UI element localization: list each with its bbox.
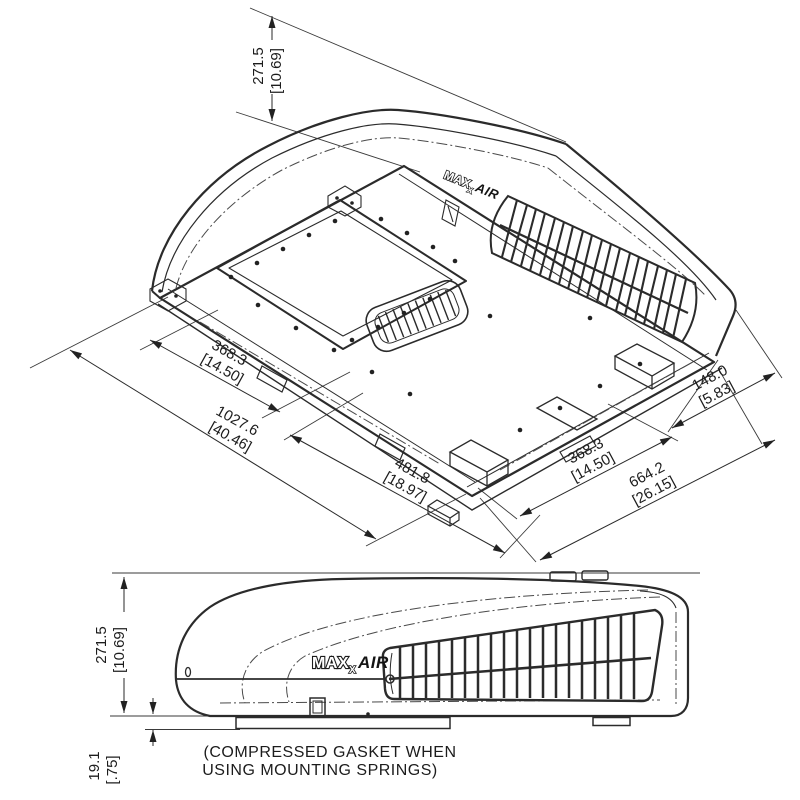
technical-drawing-page: MAX X AIR 271.5 [10.69] 368.3 [14.50] 10… — [0, 0, 800, 800]
side-logo-air: AIR — [357, 653, 389, 672]
iso-dim-height-inch: [10.69] — [268, 48, 285, 94]
side-view: MAX X AIR 271.5 [10.69] 19.1 [.75] (COMP… — [86, 571, 700, 785]
side-extension-lines — [110, 573, 700, 730]
gasket-note: (COMPRESSED GASKET WHEN USING MOUNTING S… — [202, 744, 456, 779]
side-condenser-grille — [383, 610, 662, 701]
side-dim-height-inch: [10.69] — [111, 627, 128, 673]
gasket-note-line2: USING MOUNTING SPRINGS) — [202, 762, 438, 779]
side-logo-max: MAX — [312, 655, 349, 672]
iso-condenser-grille — [491, 196, 697, 342]
side-logo-sub-x: X — [349, 665, 356, 676]
iso-base-pan — [158, 166, 722, 510]
side-dim-height-mm: 271.5 — [93, 626, 110, 664]
side-body-outline — [175, 571, 688, 716]
iso-bolts — [158, 196, 642, 432]
iso-maxxair-logo: MAX X AIR — [441, 167, 502, 205]
iso-dim-height-mm: 271.5 — [250, 47, 267, 85]
iso-dimension-texts: 271.5 [10.69] 368.3 [14.50] 1027.6 [40.4… — [198, 47, 737, 509]
iso-logo-air: AIR — [472, 179, 501, 202]
side-dimension-lines — [124, 577, 153, 746]
iso-mounting-frame — [150, 186, 466, 349]
iso-intake-vent — [362, 277, 472, 356]
isometric-view: MAX X AIR 271.5 [10.69] 368.3 [14.50] 10… — [30, 8, 782, 562]
side-dim-gasket-inch: [.75] — [104, 755, 121, 784]
drawing-canvas: MAX X AIR 271.5 [10.69] 368.3 [14.50] 10… — [0, 0, 800, 800]
gasket-note-line1: (COMPRESSED GASKET WHEN — [203, 744, 456, 761]
side-dim-gasket-mm: 19.1 — [86, 751, 103, 780]
side-maxxair-logo: MAX X AIR — [312, 653, 389, 676]
side-gasket — [236, 718, 630, 729]
side-dimension-texts: 271.5 [10.69] 19.1 [.75] — [86, 626, 128, 784]
